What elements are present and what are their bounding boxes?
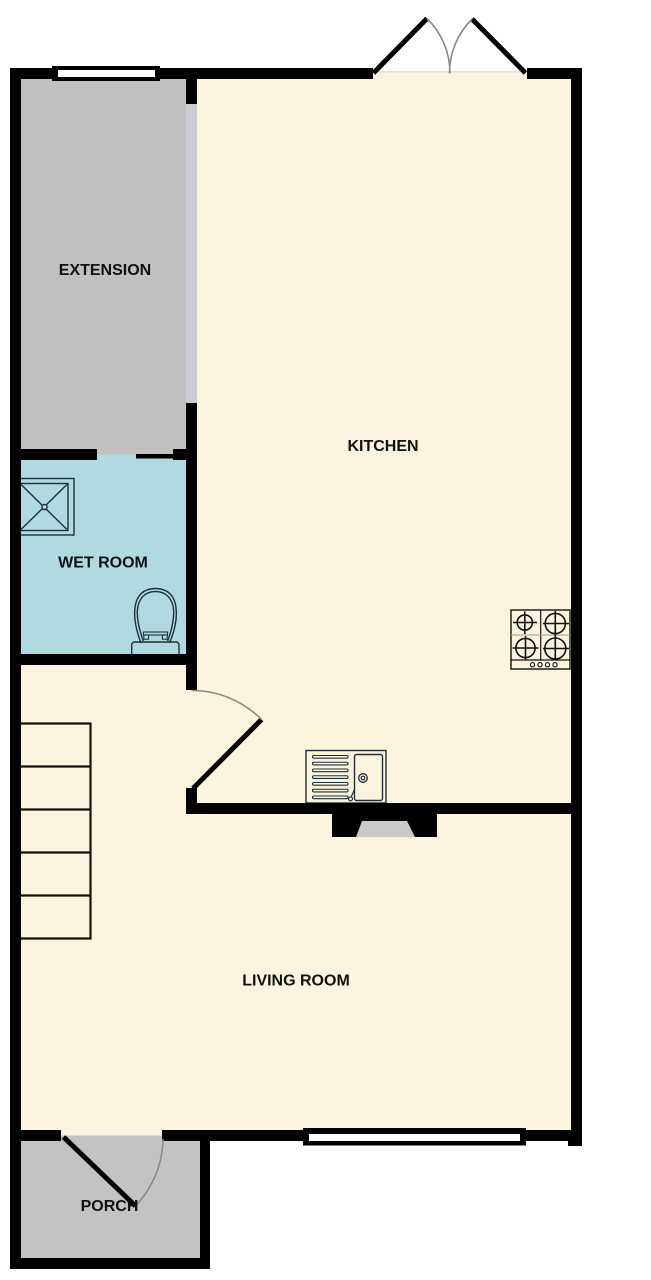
svg-text:KITCHEN: KITCHEN	[347, 438, 418, 455]
svg-text:EXTENSION: EXTENSION	[59, 262, 151, 279]
svg-text:PORCH: PORCH	[81, 1198, 139, 1215]
svg-text:WET ROOM: WET ROOM	[58, 555, 148, 572]
svg-text:LIVING ROOM: LIVING ROOM	[242, 973, 350, 990]
